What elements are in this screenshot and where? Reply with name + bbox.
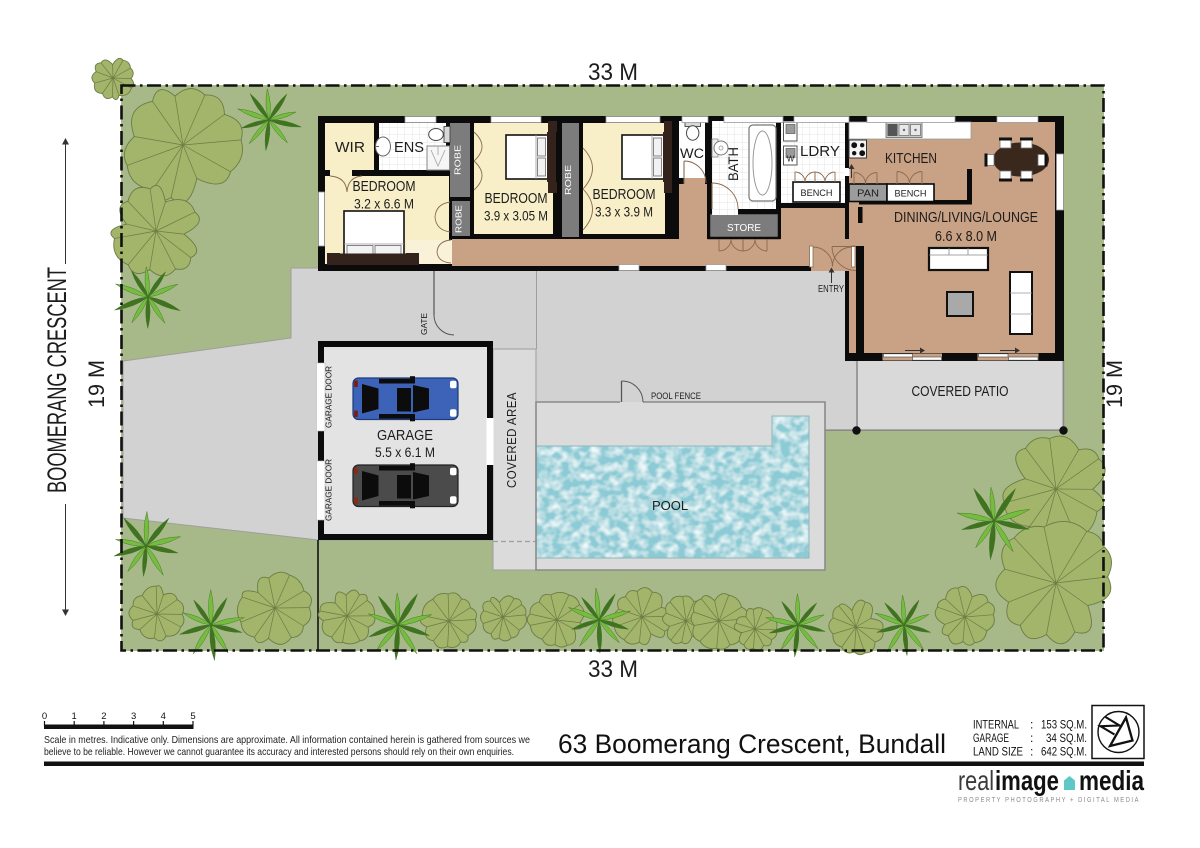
svg-text:STORE: STORE: [727, 222, 761, 234]
svg-text:real: real: [958, 765, 994, 796]
svg-text:63 Boomerang Crescent, Bundall: 63 Boomerang Crescent, Bundall: [558, 729, 946, 759]
svg-text:LDRY: LDRY: [800, 143, 840, 160]
svg-text:GATE: GATE: [419, 313, 429, 335]
svg-text:5: 5: [190, 711, 195, 722]
svg-text:ENTRY: ENTRY: [818, 284, 844, 295]
svg-text:3.3 x 3.9 M: 3.3 x 3.9 M: [595, 204, 653, 220]
svg-text:19 M: 19 M: [1102, 360, 1127, 408]
svg-text:BOOMERANG CRESCENT: BOOMERANG CRESCENT: [42, 267, 72, 493]
svg-text:image: image: [995, 765, 1059, 796]
svg-text:3.2 x 6.6 M: 3.2 x 6.6 M: [354, 196, 414, 212]
svg-text:INTERNAL: INTERNAL: [973, 718, 1019, 732]
svg-text:153 SQ.M.: 153 SQ.M.: [1041, 718, 1087, 732]
svg-text:BEDROOM: BEDROOM: [593, 187, 656, 203]
svg-text:0: 0: [42, 711, 47, 722]
svg-text:GARAGE: GARAGE: [377, 427, 433, 444]
svg-text::: :: [1030, 745, 1033, 759]
svg-text:19 M: 19 M: [84, 360, 109, 408]
svg-text:believe to be reliable. Howev: believe to be reliable. However we canno…: [44, 747, 514, 758]
svg-text:DINING/LIVING/LOUNGE: DINING/LIVING/LOUNGE: [894, 210, 1038, 226]
svg-text:ROBE: ROBE: [454, 205, 464, 233]
svg-text:KITCHEN: KITCHEN: [885, 151, 937, 167]
svg-text:6.6 x 8.0 M: 6.6 x 8.0 M: [935, 229, 997, 245]
svg-text:33 M: 33 M: [588, 656, 638, 683]
svg-text:media: media: [1079, 765, 1144, 796]
svg-text:WC: WC: [680, 146, 704, 161]
svg-text:GARAGE: GARAGE: [973, 731, 1009, 745]
svg-text:BENCH: BENCH: [895, 189, 927, 200]
svg-text:ROBE: ROBE: [453, 145, 463, 175]
svg-text:3.9 x 3.05 M: 3.9 x 3.05 M: [484, 208, 548, 224]
svg-text:1: 1: [72, 711, 77, 722]
svg-text:PAN: PAN: [857, 189, 879, 200]
svg-text:ENS: ENS: [394, 139, 424, 156]
svg-text:BENCH: BENCH: [801, 188, 833, 199]
svg-text:3: 3: [131, 711, 136, 722]
svg-text:WIR: WIR: [335, 139, 365, 156]
svg-text:642 SQ.M.: 642 SQ.M.: [1041, 745, 1087, 759]
svg-text:COVERED PATIO: COVERED PATIO: [912, 384, 1009, 400]
svg-text:PROPERTY PHOTOGRAPHY + DIGITAL: PROPERTY PHOTOGRAPHY + DIGITAL MEDIA: [958, 795, 1140, 804]
svg-text:COVERED AREA: COVERED AREA: [504, 392, 519, 488]
svg-text:33 M: 33 M: [588, 59, 638, 86]
svg-text:POOL FENCE: POOL FENCE: [651, 391, 701, 402]
svg-text:2: 2: [101, 711, 106, 722]
svg-text:POOL: POOL: [652, 498, 688, 513]
svg-text:BATH: BATH: [726, 147, 741, 181]
svg-text::: :: [1030, 718, 1033, 732]
svg-text:34 SQ.M.: 34 SQ.M.: [1046, 731, 1087, 745]
svg-text:BEDROOM: BEDROOM: [353, 179, 416, 195]
svg-text:GARAGE DOOR: GARAGE DOOR: [325, 459, 334, 521]
svg-text:5.5 x 6.1 M: 5.5 x 6.1 M: [375, 444, 435, 460]
svg-text:4: 4: [161, 711, 166, 722]
svg-text:LAND SIZE: LAND SIZE: [973, 745, 1023, 759]
svg-text:W: W: [787, 155, 795, 164]
svg-text:Scale in metres. Indicative o: Scale in metres. Indicative only. Dimens…: [44, 735, 530, 746]
svg-text:ROBE: ROBE: [563, 165, 573, 195]
svg-text::: :: [1030, 731, 1033, 745]
svg-text:BEDROOM: BEDROOM: [485, 191, 548, 207]
svg-text:GARAGE DOOR: GARAGE DOOR: [325, 366, 334, 428]
